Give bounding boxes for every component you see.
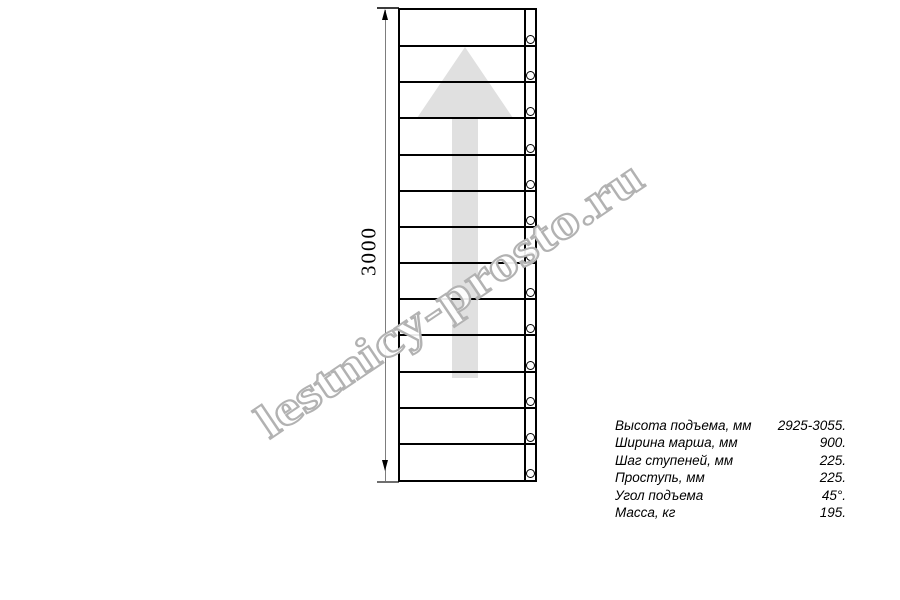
extension-line-top (377, 7, 399, 9)
fastener-circle (526, 216, 535, 225)
step-edge-line (400, 334, 535, 336)
step-edge-line (400, 190, 535, 192)
spec-value: 900. (812, 434, 846, 451)
step-edge-line (400, 262, 535, 264)
spec-table: Высота подъема, мм 2925-3055. Ширина мар… (615, 417, 846, 521)
spec-row: Угол подъема 45°. (615, 487, 846, 504)
extension-line-bottom (377, 481, 399, 483)
fastener-circle (526, 288, 535, 297)
step-edge-line (400, 45, 535, 47)
spec-label: Ширина марша, мм (615, 434, 738, 451)
step-edge-line (400, 298, 535, 300)
fastener-circle (526, 180, 535, 189)
step-edge-line (400, 407, 535, 409)
dimension-line (385, 10, 386, 481)
fastener-circle (526, 107, 535, 116)
up-arrow-shape (417, 47, 513, 378)
fastener-circle (526, 144, 535, 153)
spec-label: Угол подъема (615, 487, 703, 504)
fastener-circle (526, 252, 535, 261)
fastener-circle (526, 35, 535, 44)
spec-value: 225. (812, 469, 846, 486)
step-edge-line (400, 81, 535, 83)
drawing-canvas: 3000 Высота подъема, мм 2925-3055. Ширин… (0, 0, 900, 600)
step-edge-line (400, 226, 535, 228)
spec-row: Масса, кг 195. (615, 504, 846, 521)
staircase-plan-view (398, 8, 537, 482)
step-edge-line (400, 371, 535, 373)
fastener-circle (526, 469, 535, 478)
spec-label: Проступь, мм (615, 469, 705, 486)
spec-label: Шаг ступеней, мм (615, 452, 733, 469)
spec-label: Масса, кг (615, 504, 675, 521)
spec-row: Проступь, мм 225. (615, 469, 846, 486)
spec-row: Шаг ступеней, мм 225. (615, 452, 846, 469)
step-edge-line (400, 154, 535, 156)
spec-value: 225. (812, 452, 846, 469)
dimension-arrow-up-icon (382, 9, 388, 20)
dimension-arrow-down-icon (382, 460, 388, 471)
spec-value: 195. (812, 504, 846, 521)
fastener-circle (526, 397, 535, 406)
spec-label: Высота подъема, мм (615, 417, 751, 434)
fastener-circle (526, 71, 535, 80)
fastener-circle (526, 361, 535, 370)
step-edge-line (400, 443, 535, 445)
fastener-circle (526, 324, 535, 333)
step-edge-line (400, 117, 535, 119)
dimension-label: 3000 (357, 226, 382, 276)
spec-row: Высота подъема, мм 2925-3055. (615, 417, 846, 434)
spec-value: 45°. (814, 487, 846, 504)
spec-value: 2925-3055. (770, 417, 846, 434)
fastener-circle (526, 433, 535, 442)
stringer-line (524, 10, 526, 480)
spec-row: Ширина марша, мм 900. (615, 434, 846, 451)
